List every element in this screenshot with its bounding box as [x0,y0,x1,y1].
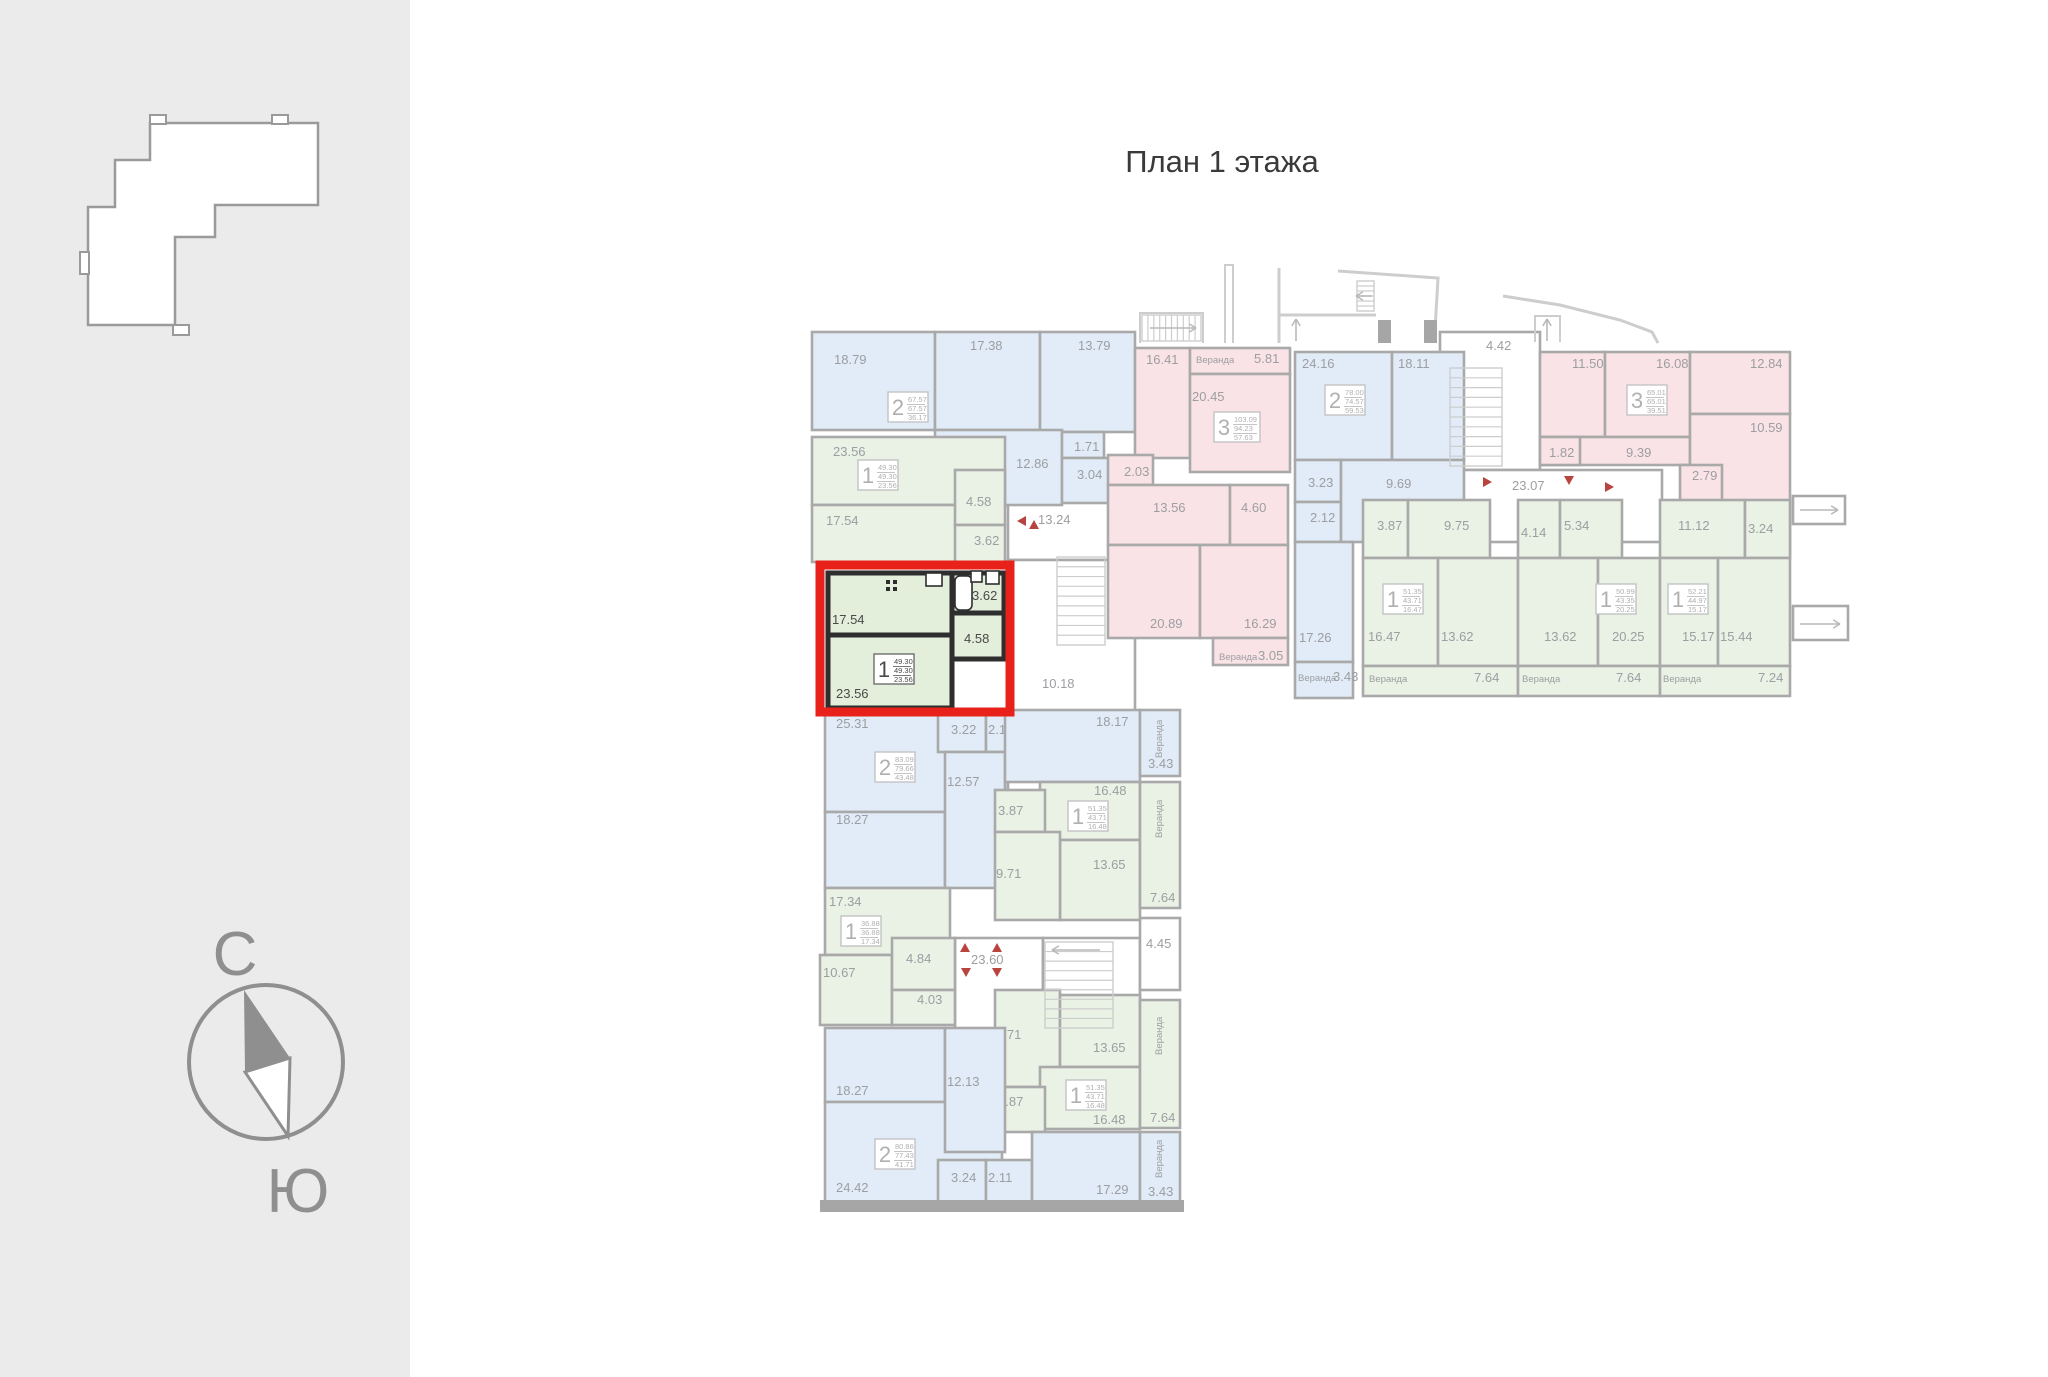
area-label: 79.66 [895,764,914,773]
area-label: 94.23 [1234,424,1253,433]
area-label: Веранда [1154,1016,1165,1055]
area-label: 12.86 [1016,456,1049,471]
apt-badge: 150.9943.3520.25 [1596,584,1636,614]
area-label: 49.30 [878,463,897,472]
wc-4.14[interactable]: 4.14 [1518,500,1560,558]
area-label: 2.12 [1310,510,1335,525]
area-label: 9.71 [996,866,1021,881]
veranda-7.64-d[interactable]: Веранда7.64 [1140,1000,1180,1128]
area-label: 9.75 [1444,518,1469,533]
area-label: 36.88 [861,919,880,928]
area-label: 4.14 [1521,525,1546,540]
area-label: 51.35 [1403,587,1422,596]
area-label: 1.82 [1549,445,1574,460]
wall-segment [820,1200,1184,1212]
sink-icon [971,571,982,582]
floor-plan: 13.2410.184.4223.0723.604.4518.7917.3813… [812,265,1848,1212]
room-13.62-b[interactable]: 13.62 [1518,558,1598,666]
area-label: 51.35 [1088,804,1107,813]
bath-3.23[interactable]: 3.23 [1295,460,1341,502]
apt-badge: 3103.0994.2357.63 [1214,412,1260,442]
area-label: 67.57 [908,395,927,404]
area-label: 3.62 [972,588,997,603]
area-label: 12.57 [947,774,980,789]
area-label: 17.34 [861,937,880,946]
direction-arrow-icon [1543,319,1551,341]
area-label: 10.18 [1042,676,1075,691]
area-label: 23.56 [878,481,897,490]
area-label: 16.48 [1086,1101,1105,1110]
area-label: 7.64 [1150,1110,1175,1125]
room-17.38[interactable]: 17.38 [935,332,1040,430]
area-label: 43.71 [1403,596,1422,605]
area-label: 24.16 [1302,356,1335,371]
area-label: 13.24 [1038,512,1071,527]
area-label: 11.12 [1678,518,1710,533]
area-label: 103.09 [1234,415,1257,424]
hall-5.34[interactable]: 5.34 [1560,500,1622,558]
area-label: 83.09 [895,755,914,764]
apt-badge: 151.3543.7116.48 [1066,1080,1106,1110]
area-label: 15.17 [1688,605,1707,614]
area-label: 1 [862,463,874,488]
sink-icon [986,571,999,584]
area-label: 9.39 [1626,445,1651,460]
area-label: 43.35 [1616,596,1635,605]
area-label: 4.03 [917,992,942,1007]
area-label: 43.71 [1086,1092,1105,1101]
area-label: 1 [1070,1083,1082,1108]
bath-3.22[interactable]: 3.22 [938,712,986,752]
area-label: 3.24 [951,1170,976,1185]
stove-icon [886,580,890,584]
area-label: 51.35 [1086,1083,1105,1092]
area-label: 4.42 [1486,338,1511,353]
area-label: 15.17 [1682,629,1715,644]
area-label: 41.71 [895,1160,914,1169]
area-label: 20.45 [1192,389,1225,404]
area-label: 16.48 [1093,1112,1126,1127]
hall-4.58[interactable]: 4.58 [955,470,1005,525]
compass-south-label: Ю [267,1157,330,1226]
bath-3.87-a[interactable]: 3.87 [1363,500,1408,558]
floor-plan-page: С Ю План 1 этажа 13.2410.184.4223.0723.6… [0,0,2048,1377]
room-18.17[interactable]: 18.17 [1005,710,1140,782]
room-18.27-a[interactable]: 18.27 [825,812,945,888]
area-label: 24.42 [836,1180,869,1195]
area-label: 16.47 [1403,605,1422,614]
area-label: 9.69 [1386,476,1411,491]
area-label: Веранда [1196,355,1235,366]
area-label: 16.41 [1146,352,1179,367]
area-label: 17.54 [826,513,859,528]
area-label: 20.25 [1616,605,1635,614]
area-label: 2 [892,395,904,420]
veranda-3.43-c[interactable]: Веранда3.43 [1140,1132,1180,1204]
area-label: 18.79 [834,352,867,367]
area-label: 5.81 [1254,351,1279,366]
stove-icon [893,587,897,591]
area-label: 20.25 [1612,629,1645,644]
hall-4.84[interactable]: 4.84 [892,938,955,990]
apt-badge: 151.3543.7116.48 [1068,801,1108,831]
area-label: 4.45 [1146,936,1171,951]
area-label: 17.26 [1299,630,1332,645]
area-label: 4.60 [1241,500,1266,515]
area-label: 10.67 [823,965,856,980]
area-label: 78.00 [1345,388,1364,397]
area-label: 65.01 [1647,397,1666,406]
area-label: 77.43 [895,1151,914,1160]
area-label: 23.56 [836,686,869,701]
veranda-5.81[interactable]: Веранда5.81 [1190,348,1290,374]
veranda-7.64-b[interactable]: Веранда7.64 [1518,666,1660,696]
area-label: 23.56 [833,444,866,459]
area-label: 2.03 [1124,464,1149,479]
area-label: 3.22 [951,722,976,737]
wc-2.03[interactable]: 2.03 [1108,455,1153,485]
area-label: 2 [879,755,891,780]
area-label: 65.01 [1647,388,1666,397]
room-17.29[interactable]: 17.29 [1032,1132,1140,1204]
area-label: 52.21 [1688,587,1707,596]
area-label: 1 [1672,587,1684,612]
room-20.89[interactable]: 20.89 [1108,545,1200,638]
veranda-3.05[interactable]: Веранда3.05 [1213,638,1288,665]
balcony-4.45: 4.45 [1140,918,1180,990]
veranda-7.64-a[interactable]: Веранда7.64 [1363,666,1518,696]
room-16.29[interactable]: 16.29 [1200,545,1288,638]
room-17.26[interactable]: 17.26 [1295,542,1353,662]
area-label: 18.17 [1096,714,1129,729]
area-label: 13.65 [1093,857,1126,872]
area-label: 43.71 [1088,813,1107,822]
area-label: 2 [1329,388,1341,413]
area-label: 49.30 [878,472,897,481]
room-13.65-b[interactable]: 13.65 [1060,995,1140,1067]
area-label: 5.34 [1564,518,1589,533]
exterior-outline [1225,265,1233,343]
area-label: 4.58 [966,494,991,509]
bath-4.60[interactable]: 4.60 [1230,485,1288,545]
area-label: 17.34 [829,894,862,909]
room-11.50[interactable]: 11.50 [1540,352,1605,437]
area-label: 16.08 [1656,356,1689,371]
bath-3.24[interactable]: 3.24 [1745,500,1790,558]
area-label: 16.29 [1244,616,1277,631]
bath-4.03[interactable]: 4.03 [892,990,955,1025]
area-label: 1 [1600,587,1612,612]
area-label: 1 [1072,804,1084,829]
area-label: 13.56 [1153,500,1186,515]
area-label: 2.79 [1692,468,1717,483]
area-label: 15.44 [1720,629,1753,644]
area-label: 7.64 [1150,890,1175,905]
area-label: 23.60 [971,952,1004,967]
apt-badge: 136.8836.8817.34 [841,916,881,946]
area-label: 57.63 [1234,433,1253,442]
veranda-3.43-b[interactable]: Веранда3.43 [1140,710,1180,776]
bath-3.87-b[interactable]: 3.87 [995,790,1045,832]
apt-badge: 278.0074.5759.53 [1325,385,1365,415]
page-title: План 1 этажа [1125,144,1319,179]
wc-1.71[interactable]: 1.71 [1062,432,1104,458]
area-label: 1 [1387,587,1399,612]
area-label: 16.48 [1088,822,1107,831]
room-16.41[interactable]: 16.41 [1135,348,1190,458]
veranda-7.24[interactable]: Веранда7.24 [1660,666,1790,696]
area-label: 36.17 [908,413,927,422]
area-label: 3.87 [1377,518,1402,533]
wc-2.11[interactable]: 2.11 [986,1160,1032,1204]
wc-1.82[interactable]: 1.82 [1540,437,1580,465]
area-label: 36.88 [861,928,880,937]
room-13.65-a[interactable]: 13.65 [1060,840,1140,920]
stove-icon [886,587,890,591]
area-label: 43.48 [895,773,914,782]
area-label: 3.87 [998,803,1023,818]
area-label: 7.64 [1616,670,1641,685]
area-label: 16.48 [1094,783,1127,798]
area-label: 3.62 [974,533,999,548]
hall-4.58-selected[interactable]: 4.58 [952,613,1004,659]
area-label: Веранда [1154,719,1165,758]
area-label: 3.24 [1748,521,1773,536]
area-label: 1.71 [1074,439,1099,454]
apt-badge: 149.3049.3023.56 [858,460,898,490]
area-label: 3 [1218,415,1230,440]
kitchen-10.67[interactable]: 10.67 [820,955,892,1025]
area-label: 12.84 [1750,356,1783,371]
veranda-7.64-c[interactable]: Веранда7.64 [1140,782,1180,908]
area-label: 3.43 [1333,669,1358,684]
hall-12.13[interactable]: 12.13 [945,1028,1005,1152]
area-label: 59.53 [1345,406,1364,415]
direction-arrow-icon [1292,319,1300,341]
area-label: Веранда [1663,674,1702,685]
area-label: 3.04 [1077,467,1102,482]
area-label: 7.24 [1758,670,1783,685]
area-label: 74.57 [1345,397,1364,406]
area-label: 17.54 [832,612,865,627]
area-label: 3.23 [1308,475,1333,490]
area-label: 23.07 [1512,478,1545,493]
area-label: 3.05 [1258,648,1283,663]
area-label: 4.84 [906,951,931,966]
area-label: Веранда [1154,1139,1165,1178]
area-label: Веранда [1522,674,1561,685]
apt-badge: 365.0165.0139.51 [1627,385,1667,415]
hall-13.56[interactable]: 13.56 [1108,485,1230,545]
apt-badge: 283.0979.6643.48 [875,752,915,782]
area-label: 1 [845,919,857,944]
room-12.84[interactable]: 12.84 [1690,352,1790,414]
apt-badge: 280.8677.4341.71 [875,1139,915,1169]
kitchen-9.71-a[interactable]: 9.71 [995,832,1060,920]
sink-icon [926,573,942,586]
area-label: Веранда [1298,673,1337,684]
area-label: 80.86 [895,1142,914,1151]
bath-3.62[interactable]: 3.62 [955,525,1005,562]
room-17.54[interactable]: 17.54 [812,505,960,562]
area-label: 39.51 [1647,406,1666,415]
area-label: 20.89 [1150,616,1183,631]
area-label: 13.79 [1078,338,1111,353]
area-label: 17.29 [1096,1182,1129,1197]
area-label: 3.43 [1148,1184,1173,1199]
area-label: 1 [878,657,890,682]
area-label: 13.62 [1544,629,1577,644]
area-label: 49.30 [894,666,913,675]
area-label: 50.99 [1616,587,1635,596]
apt-badge: 151.3543.7116.47 [1383,584,1423,614]
area-label: 4.58 [964,631,989,646]
apt-badge-selected: 149.3049.3023.56 [874,654,914,684]
area-label: 11.50 [1572,356,1604,371]
area-label: 18.11 [1398,356,1430,371]
kitchen-11.12[interactable]: 11.12 [1660,500,1745,558]
veranda-3.43-a[interactable]: Веранда3.43 [1295,662,1358,698]
area-label: Веранда [1369,674,1408,685]
area-label: 7.64 [1474,670,1499,685]
direction-arrow-icon [1356,292,1372,300]
area-label: Веранда [1154,799,1165,838]
room-15.44[interactable]: 15.44 [1718,558,1790,666]
area-label: 17.38 [970,338,1003,353]
room-13.62-a[interactable]: 13.62 [1438,558,1518,666]
apt-badge: 267.5767.5736.17 [888,392,928,422]
room-13.79[interactable]: 13.79 [1040,332,1135,432]
area-label: 18.27 [836,1083,869,1098]
area-label: Веранда [1219,652,1258,663]
area-label: 2 [879,1142,891,1167]
area-label: 16.47 [1368,629,1401,644]
area-label: 44.97 [1688,596,1707,605]
area-label: 49.30 [894,657,913,666]
kitchen-9.75[interactable]: 9.75 [1408,500,1490,558]
compass-north-label: С [213,920,258,989]
bathtub-icon [955,576,972,610]
area-label: 25.31 [836,716,869,731]
area-label: 67.57 [908,404,927,413]
area-label: 18.27 [836,812,869,827]
apt-badge: 152.2144.9715.17 [1668,584,1708,614]
stove-icon [893,580,897,584]
wc-2.12[interactable]: 2.12 [1295,502,1341,542]
room-18.27-b[interactable]: 18.27 [825,1028,945,1102]
area-label: 3.43 [1148,756,1173,771]
wall-segment [1424,320,1437,343]
area-label: 3 [1631,388,1643,413]
area-label: 13.65 [1093,1040,1126,1055]
area-label: 23.56 [894,675,913,684]
area-label: 13.62 [1441,629,1474,644]
area-label: 2.11 [988,1170,1012,1185]
wall-segment [1378,320,1391,343]
bath-3.24-b[interactable]: 3.24 [938,1160,986,1204]
area-label: 12.13 [947,1074,980,1089]
area-label: 10.59 [1750,420,1783,435]
